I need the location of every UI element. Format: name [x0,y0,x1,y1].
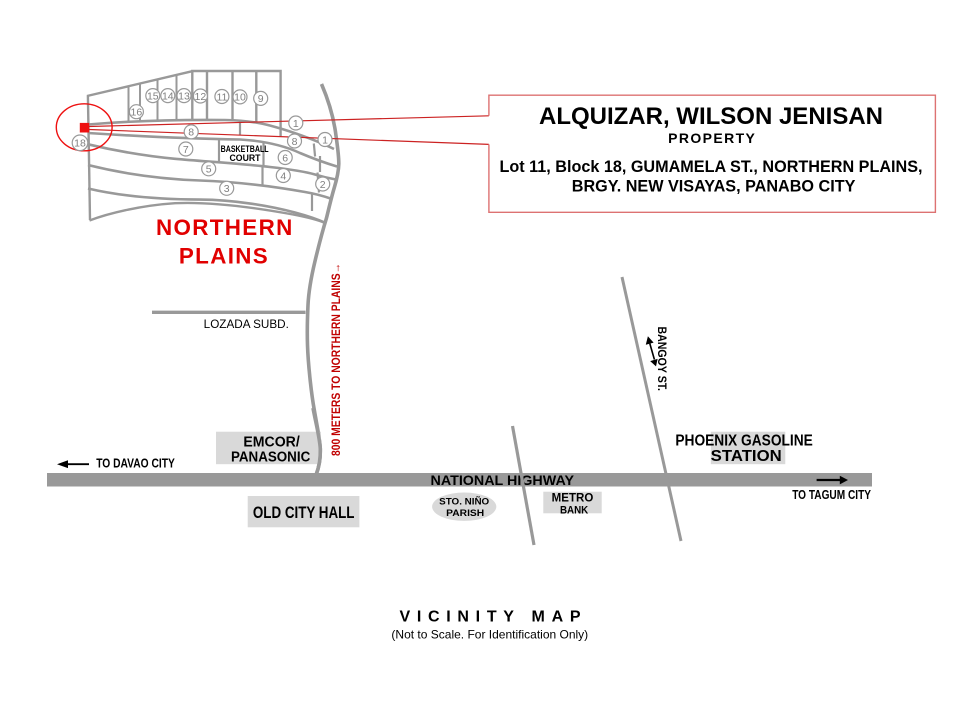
svg-text:2: 2 [320,179,326,191]
svg-text:12: 12 [195,91,207,103]
svg-text:TO TAGUM CITY: TO TAGUM CITY [792,487,871,502]
svg-text:LOZADA SUBD.: LOZADA SUBD. [204,319,289,331]
svg-text:16: 16 [131,107,143,119]
svg-text:1: 1 [322,134,328,146]
svg-text:TO DAVAO CITY: TO DAVAO CITY [96,456,175,471]
svg-text:BRGY. NEW VISAYAS, PANABO CITY: BRGY. NEW VISAYAS, PANABO CITY [572,178,856,196]
svg-text:VICINITY MAP: VICINITY MAP [400,609,581,626]
svg-text:BANK: BANK [560,504,589,516]
svg-text:10: 10 [234,92,246,104]
svg-text:COURT: COURT [230,153,261,163]
svg-text:5: 5 [206,164,212,176]
svg-text:BANGOY ST.: BANGOY ST. [655,327,667,392]
svg-text:11: 11 [216,91,227,103]
svg-text:14: 14 [162,90,174,102]
svg-text:8: 8 [292,136,298,148]
svg-text:(Not to Scale. For Identificat: (Not to Scale. For Identification Only) [391,627,588,641]
svg-text:METRO: METRO [552,493,594,505]
svg-text:PROPERTY: PROPERTY [668,130,756,146]
svg-text:ALQUIZAR, WILSON JENISAN: ALQUIZAR, WILSON JENISAN [539,103,883,130]
svg-text:NATIONAL HIGHWAY: NATIONAL HIGHWAY [431,473,575,488]
svg-text:6: 6 [282,152,288,164]
svg-text:4: 4 [280,170,286,182]
svg-text:STATION: STATION [711,448,782,465]
svg-text:13: 13 [178,90,190,102]
svg-text:PLAINS: PLAINS [179,244,269,269]
svg-text:8: 8 [188,127,194,139]
svg-text:1: 1 [293,118,299,130]
svg-text:3: 3 [224,183,230,195]
svg-text:PANASONIC: PANASONIC [231,450,310,466]
svg-text:PHOENIX GASOLINE: PHOENIX GASOLINE [675,432,813,449]
svg-text:7: 7 [183,144,189,156]
svg-text:18: 18 [74,138,86,150]
svg-text:PARISH: PARISH [446,508,484,518]
svg-text:15: 15 [147,90,159,102]
svg-text:9: 9 [258,93,264,105]
svg-text:OLD CITY HALL: OLD CITY HALL [253,503,355,522]
svg-text:Lot 11, Block 18, GUMAMELA ST.: Lot 11, Block 18, GUMAMELA ST., NORTHERN… [499,158,922,176]
svg-text:NORTHERN: NORTHERN [156,215,294,240]
svg-text:800 METERS TO NORTHERN PLAINS→: 800 METERS TO NORTHERN PLAINS→ [329,263,343,456]
svg-text:STO. NIÑO: STO. NIÑO [439,497,489,507]
svg-text:EMCOR/: EMCOR/ [243,435,299,451]
